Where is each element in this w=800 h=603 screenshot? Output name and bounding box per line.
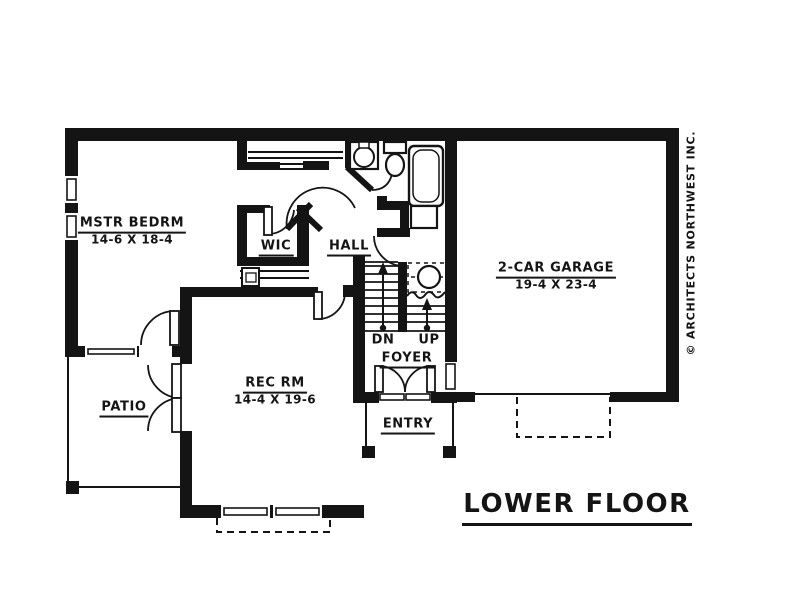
window-mbr-bottom [88, 349, 134, 354]
wall-garage-bottom-corner [648, 392, 679, 402]
room-name-master-bedroom: MSTR BEDRM [78, 217, 186, 234]
wall-wic-bottom [237, 257, 309, 266]
wall-garage-bottom-right [610, 392, 650, 402]
wall-garage-bottom-left [443, 392, 475, 402]
room-dims-garage: 19-4 X 23-4 [515, 279, 597, 293]
wall-bath-bottom [377, 201, 409, 210]
room-name-rec-room: REC RM [243, 377, 307, 394]
entry-sill-2 [406, 394, 430, 400]
wall-stair-divider [398, 262, 407, 332]
wall-garage-left [445, 128, 457, 364]
wall-rec-bottom [180, 505, 364, 518]
room-label-hall: HALL [327, 240, 371, 257]
patio-post [66, 481, 79, 494]
garage-apron-dashed [517, 397, 610, 437]
room-name-entry: ENTRY [381, 418, 435, 435]
plan-title: LOWER FLOOR [462, 489, 692, 526]
wall-closet-stub [303, 161, 329, 170]
wall-foyer-left [353, 255, 365, 403]
room-dims-rec-room: 14-4 X 19-6 [234, 394, 316, 408]
architect-copyright: © ARCHITECTS NORTHWEST INC. [685, 131, 698, 356]
porch-post-left [362, 446, 375, 458]
wall-left [65, 128, 78, 357]
rec-window-well-dashed [217, 518, 330, 532]
room-label-rec-room: REC RM 14-4 X 19-6 [234, 377, 316, 408]
stair-label-down: DN [372, 334, 395, 349]
bathtub-icon [409, 146, 443, 206]
sink-icon [350, 142, 378, 169]
wall-utility-bottom [377, 228, 410, 237]
window-left-1 [67, 179, 76, 200]
door-arc-bathroom [372, 174, 392, 190]
garage-foyer-door [446, 364, 455, 389]
room-label-patio: PATIO [99, 401, 148, 418]
window-rec-2 [276, 508, 319, 515]
stair-label-up: UP [418, 334, 439, 349]
room-dims-master-bedroom: 14-6 X 18-4 [91, 234, 173, 248]
room-label-master-bedroom: MSTR BEDRM 14-6 X 18-4 [78, 217, 186, 248]
floor-plan: MSTR BEDRM 14-6 X 18-4 WIC HALL 2-CAR GA… [0, 0, 800, 603]
room-name-wic: WIC [259, 240, 294, 257]
window-rec-1 [224, 508, 267, 515]
wall-top [65, 128, 679, 141]
door-leaf-french-upper [172, 364, 181, 398]
door-leaf-rec-room [314, 292, 322, 319]
door-leaf-entry-left [375, 366, 383, 392]
door-leaf-entry-right [427, 366, 435, 392]
linen-cabinet [411, 206, 437, 228]
porch-post-right [443, 446, 456, 458]
stair-arrow-down [378, 262, 388, 331]
wall-wic-left [237, 205, 247, 266]
room-label-entry: ENTRY [381, 418, 435, 435]
stair-break-line [407, 292, 445, 298]
wall-foyer-bottom-left [353, 392, 379, 403]
room-label-garage: 2-CAR GARAGE 19-4 X 23-4 [496, 262, 616, 293]
toilet-icon [384, 142, 406, 176]
wall-rec-top [180, 287, 318, 297]
wall-closet-bottom [237, 162, 280, 170]
door-leaf-wic [264, 207, 272, 235]
room-label-wic: WIC [259, 240, 294, 257]
room-name-patio: PATIO [99, 401, 148, 418]
door-leaf-french-lower [172, 398, 181, 432]
wall-right [666, 128, 679, 402]
entry-sill-1 [380, 394, 404, 400]
window-left-2 [67, 216, 76, 237]
room-name-garage: 2-CAR GARAGE [496, 262, 616, 279]
door-leaf-bathroom [347, 167, 372, 190]
door-leaf-mbr-patio [170, 311, 179, 345]
stair-up-text: UP [418, 334, 439, 349]
water-heater-icon [411, 266, 446, 288]
stair-down-text: DN [372, 334, 395, 349]
room-label-foyer: FOYER [380, 352, 435, 369]
room-name-foyer: FOYER [380, 352, 435, 369]
room-name-hall: HALL [327, 240, 371, 257]
